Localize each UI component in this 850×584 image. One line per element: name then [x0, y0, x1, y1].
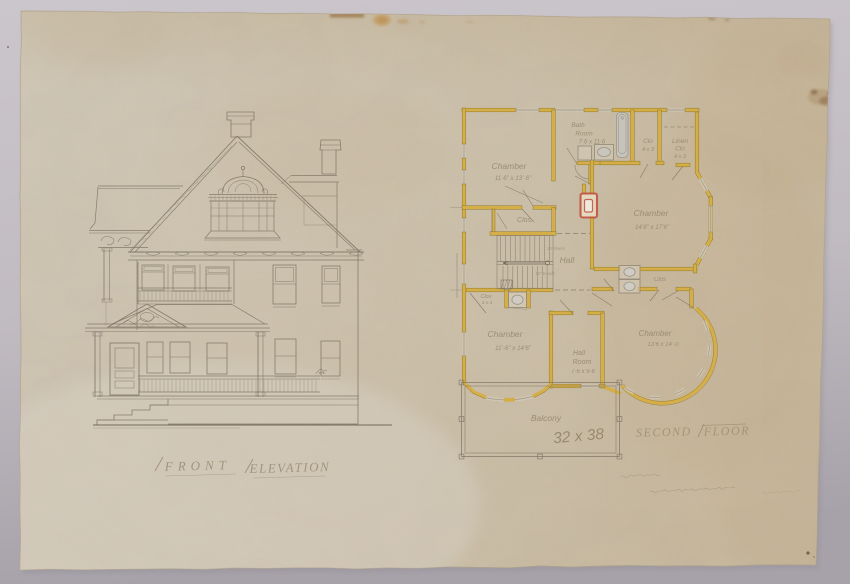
- svg-text:Hall: Hall: [560, 255, 576, 265]
- svg-text:10” treads: 10” treads: [535, 271, 555, 276]
- svg-text:Clos: Clos: [654, 277, 666, 283]
- svg-text:3 x 4: 3 x 4: [482, 300, 493, 306]
- svg-text:15 Risers: 15 Risers: [547, 246, 566, 251]
- svg-text:Chamber: Chamber: [488, 329, 524, 339]
- svg-text:Bath: Bath: [571, 122, 585, 129]
- svg-text:Chamber: Chamber: [639, 329, 672, 338]
- svg-text:Clo: Clo: [675, 146, 685, 153]
- svg-text:FLOOR: FLOOR: [703, 423, 751, 438]
- svg-text:14’6” x 17’6”: 14’6” x 17’6”: [635, 224, 670, 231]
- svg-text:Linen: Linen: [672, 138, 688, 145]
- svg-text:Balcony: Balcony: [531, 413, 562, 423]
- svg-text:Room: Room: [575, 131, 593, 138]
- svg-text:Clo: Clo: [643, 138, 653, 145]
- svg-text:Room: Room: [573, 359, 592, 366]
- svg-text:4 x 3: 4 x 3: [642, 147, 655, 153]
- svg-text:11’-6” x 14’6”: 11’-6” x 14’6”: [495, 345, 532, 352]
- svg-text:7·6 x 11·6: 7·6 x 11·6: [579, 140, 606, 146]
- svg-text:Hall: Hall: [573, 350, 586, 357]
- svg-text:7·6 x 9·6: 7·6 x 9·6: [571, 369, 595, 375]
- svg-text:FRONT: FRONT: [164, 457, 232, 474]
- svg-text:Chamber: Chamber: [492, 161, 528, 171]
- svg-text:4 x 3: 4 x 3: [674, 154, 687, 160]
- svg-text:11·6” x 13’·6”: 11·6” x 13’·6”: [495, 175, 532, 182]
- svg-text:13’6 x 14’·0: 13’6 x 14’·0: [647, 342, 679, 348]
- svg-text:Clos.: Clos.: [517, 217, 533, 224]
- svg-text:ELEVATION: ELEVATION: [248, 459, 330, 476]
- svg-text:SECOND: SECOND: [636, 424, 692, 439]
- svg-text:Chamber: Chamber: [634, 208, 670, 218]
- svg-text:Clos: Clos: [480, 294, 491, 300]
